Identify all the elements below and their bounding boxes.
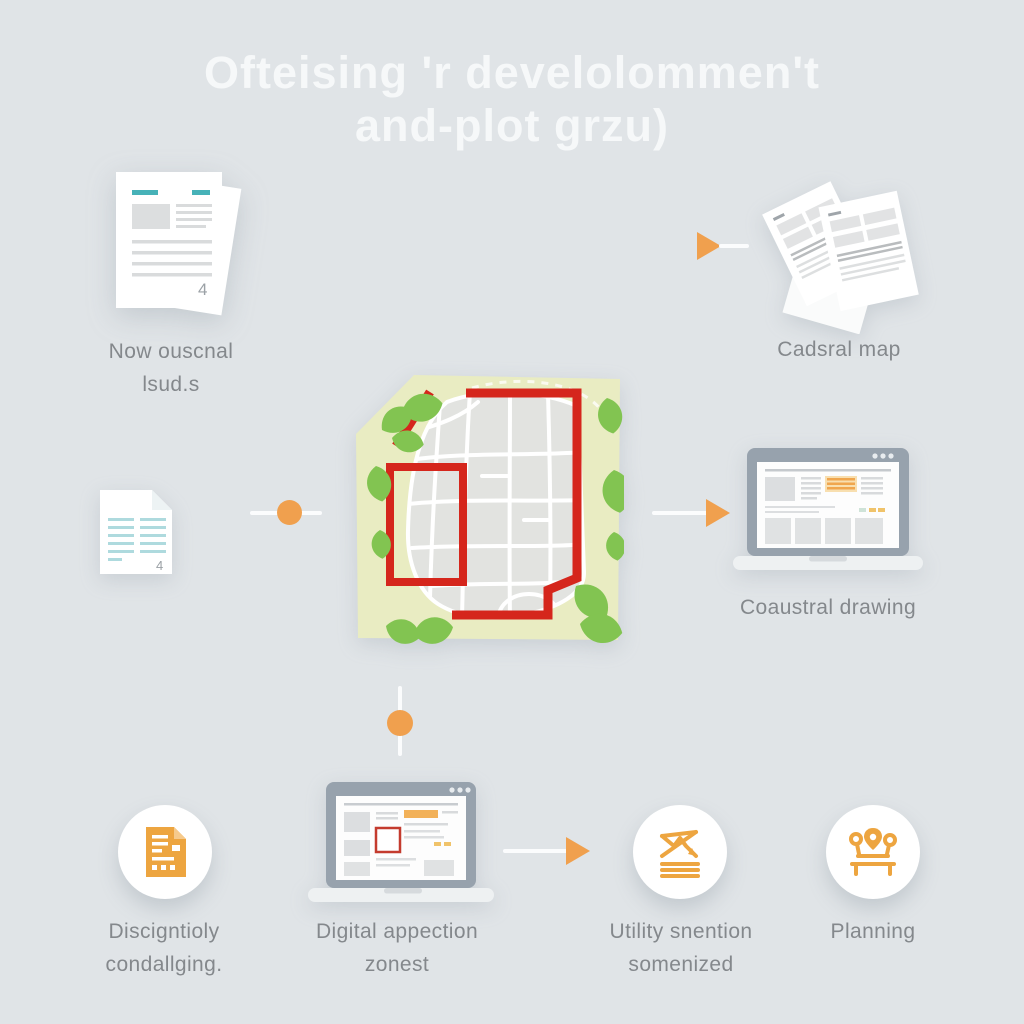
title-line-1: Ofteising 'r develolommen't bbox=[0, 46, 1024, 99]
doc-corner-glyph: 4 bbox=[156, 558, 163, 573]
label-digital-inspection: Digital appection zonest bbox=[316, 916, 478, 981]
label-planning: Planning bbox=[831, 916, 916, 949]
label-cadastral-drawing: Coaustral drawing bbox=[740, 592, 916, 625]
cadastral-map-illustration bbox=[352, 372, 624, 644]
label-description: Discigntioly condallging. bbox=[106, 916, 223, 981]
page-title: Ofteising 'r develolommen't and-plot grz… bbox=[0, 46, 1024, 152]
doc-corner-glyph: 4 bbox=[198, 280, 207, 299]
document-stack-icon: 4 bbox=[110, 164, 248, 326]
utility-network-node bbox=[633, 805, 727, 899]
infographic-canvas: Ofteising 'r develolommen't and-plot grz… bbox=[0, 0, 1024, 1024]
label-source-documents: Now ouscnal lsud.s bbox=[109, 336, 234, 401]
planning-node bbox=[826, 805, 920, 899]
document-icon: 4 bbox=[96, 484, 176, 579]
title-line-2: and-plot grzu) bbox=[0, 99, 1024, 152]
form-document-icon bbox=[136, 823, 194, 881]
scattered-documents-icon bbox=[760, 172, 928, 334]
label-cadastral-map: Cadsral map bbox=[777, 334, 900, 367]
utility-network-icon bbox=[650, 822, 710, 882]
label-utility: Utility snention somenized bbox=[610, 916, 753, 981]
planning-icon bbox=[843, 822, 903, 882]
laptop-icon bbox=[733, 448, 923, 578]
form-document-node bbox=[118, 805, 212, 899]
laptop-icon bbox=[306, 782, 496, 912]
